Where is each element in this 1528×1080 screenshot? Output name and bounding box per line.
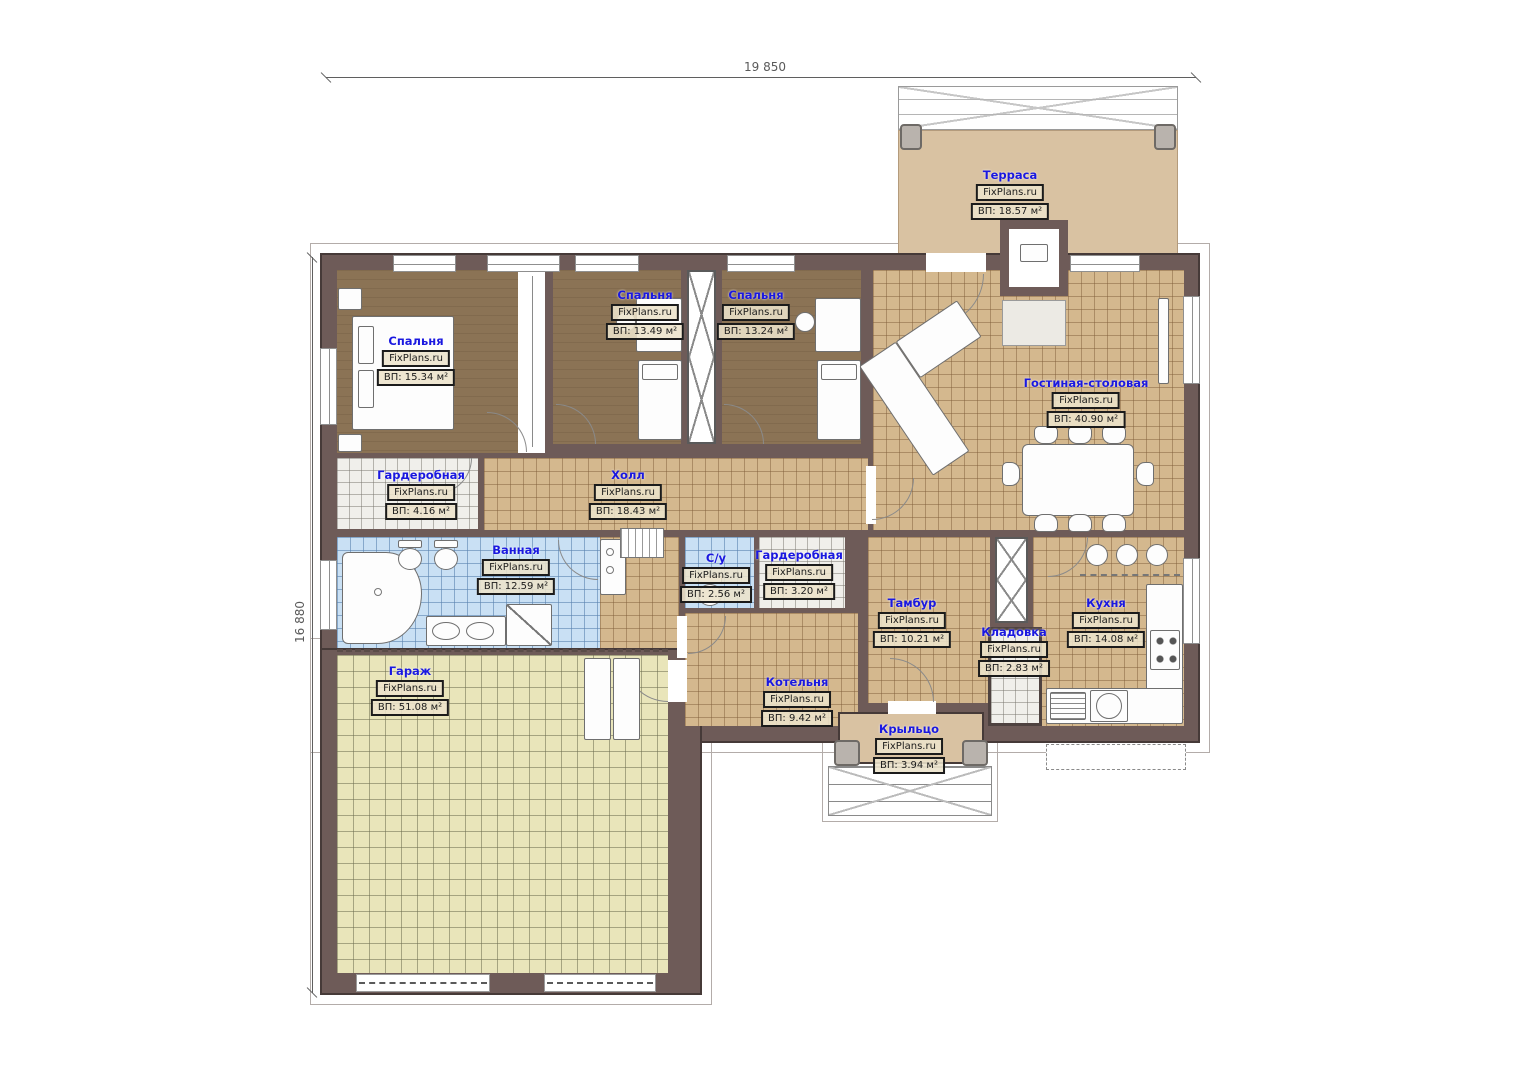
watermark: FixPlans.ru bbox=[1072, 612, 1140, 629]
garage-boundary-dashed bbox=[337, 649, 668, 652]
kitchen-sink bbox=[1096, 693, 1122, 719]
room-name: Гардеробная bbox=[755, 548, 843, 562]
terrace-post bbox=[1154, 124, 1176, 150]
room-label-porch: Крыльцо FixPlans.ru ВП: 3.94 м² bbox=[873, 722, 945, 774]
back-patio bbox=[1046, 744, 1186, 770]
garage-door-opening bbox=[668, 660, 687, 702]
watermark: FixPlans.ru bbox=[763, 691, 831, 708]
window bbox=[727, 255, 795, 272]
bidet-base bbox=[434, 540, 458, 548]
bathtub-drain bbox=[374, 588, 382, 596]
room-area: ВП: 3.20 м² bbox=[763, 583, 835, 600]
washbasin bbox=[466, 622, 494, 640]
attic-ladder-hatch bbox=[620, 528, 664, 558]
bar-stool bbox=[1086, 544, 1108, 566]
nightstand bbox=[338, 288, 362, 310]
room-name: Ванная bbox=[492, 543, 540, 557]
room-area: ВП: 3.94 м² bbox=[873, 757, 945, 774]
dining-chair bbox=[1034, 426, 1058, 444]
room-label-pantry: Кладовка FixPlans.ru ВП: 2.83 м² bbox=[978, 625, 1050, 677]
bar-stool bbox=[1146, 544, 1168, 566]
dishwasher bbox=[1050, 692, 1086, 720]
dining-chair bbox=[1102, 514, 1126, 532]
window bbox=[393, 255, 456, 272]
window bbox=[320, 348, 337, 425]
terrace-decking bbox=[898, 86, 1178, 130]
room-area: ВП: 10.21 м² bbox=[873, 631, 951, 648]
room-label-bedroom-2: Спальня FixPlans.ru ВП: 13.49 м² bbox=[606, 288, 684, 340]
garage-shelving bbox=[584, 658, 611, 740]
window bbox=[1183, 558, 1200, 644]
hearth-rug bbox=[1002, 300, 1066, 346]
bar-counter-dashed bbox=[1080, 574, 1180, 576]
watermark: FixPlans.ru bbox=[976, 184, 1044, 201]
cabinet-knob bbox=[606, 566, 614, 574]
pillow bbox=[358, 326, 374, 364]
boiler-door-opening bbox=[677, 616, 687, 658]
watermark: FixPlans.ru bbox=[878, 612, 946, 629]
watermark: FixPlans.ru bbox=[594, 484, 662, 501]
room-name: С/у bbox=[706, 551, 726, 565]
floor-plan-canvas: 19 850 16 880 bbox=[0, 0, 1528, 1080]
room-area: ВП: 18.57 м² bbox=[971, 203, 1049, 220]
porch-post bbox=[962, 740, 988, 766]
dimension-line-top bbox=[326, 77, 1196, 78]
window bbox=[320, 560, 337, 630]
watermark: FixPlans.ru bbox=[482, 559, 550, 576]
pillow bbox=[642, 364, 678, 380]
dining-chair bbox=[1068, 426, 1092, 444]
floor-hall bbox=[484, 458, 868, 530]
room-name: Терраса bbox=[983, 168, 1037, 182]
room-label-living-dining: Гостиная-столовая FixPlans.ru ВП: 40.90 … bbox=[1024, 376, 1149, 428]
room-area: ВП: 14.08 м² bbox=[1067, 631, 1145, 648]
shower bbox=[506, 604, 552, 646]
cabinet-knob bbox=[606, 548, 614, 556]
room-label-garage: Гараж FixPlans.ru ВП: 51.08 м² bbox=[371, 664, 449, 716]
room-label-wardrobe-1: Гардеробная FixPlans.ru ВП: 4.16 м² bbox=[377, 468, 465, 520]
room-name: Спальня bbox=[388, 334, 443, 348]
room-name: Холл bbox=[611, 468, 645, 482]
room-label-hall: Холл FixPlans.ru ВП: 18.43 м² bbox=[589, 468, 667, 520]
porch-post bbox=[834, 740, 860, 766]
room-area: ВП: 4.16 м² bbox=[385, 503, 457, 520]
room-name: Спальня bbox=[617, 288, 672, 302]
room-label-boiler-room: Котельня FixPlans.ru ВП: 9.42 м² bbox=[761, 675, 833, 727]
garage-door bbox=[544, 974, 656, 992]
room-area: ВП: 12.59 м² bbox=[477, 578, 555, 595]
room-area: ВП: 2.83 м² bbox=[978, 660, 1050, 677]
room-area: ВП: 13.24 м² bbox=[717, 323, 795, 340]
room-name: Гараж bbox=[389, 664, 432, 678]
room-name: Кухня bbox=[1086, 596, 1126, 610]
room-label-bedroom-1: Спальня FixPlans.ru ВП: 15.34 м² bbox=[377, 334, 455, 386]
room-name: Гостиная-столовая bbox=[1024, 376, 1149, 390]
dining-table bbox=[1022, 444, 1134, 516]
dining-chair bbox=[1102, 426, 1126, 444]
room-name: Гардеробная bbox=[377, 468, 465, 482]
window bbox=[575, 255, 639, 272]
washbasin bbox=[432, 622, 460, 640]
bar-stool bbox=[1116, 544, 1138, 566]
desk bbox=[815, 298, 861, 352]
chair bbox=[795, 312, 815, 332]
room-name: Котельня bbox=[766, 675, 829, 689]
room-name: Кладовка bbox=[981, 625, 1047, 639]
watermark: FixPlans.ru bbox=[980, 641, 1048, 658]
window bbox=[1070, 255, 1140, 272]
watermark: FixPlans.ru bbox=[387, 484, 455, 501]
dimension-line-left bbox=[312, 257, 313, 993]
room-area: ВП: 13.49 м² bbox=[606, 323, 684, 340]
window bbox=[1183, 296, 1200, 384]
dimension-height-label: 16 880 bbox=[293, 597, 307, 647]
dining-chair bbox=[1034, 514, 1058, 532]
dimension-width-label: 19 850 bbox=[740, 60, 790, 74]
watermark: FixPlans.ru bbox=[682, 567, 750, 584]
pillow bbox=[821, 364, 857, 380]
closet-sliding bbox=[518, 270, 545, 453]
bidet bbox=[434, 548, 458, 570]
dining-chair bbox=[1136, 462, 1154, 486]
room-area: ВП: 2.56 м² bbox=[680, 586, 752, 603]
terrace-door-opening bbox=[926, 253, 986, 272]
nightstand bbox=[338, 434, 362, 452]
room-label-bathroom: Ванная FixPlans.ru ВП: 12.59 м² bbox=[477, 543, 555, 595]
room-label-vestibule: Тамбур FixPlans.ru ВП: 10.21 м² bbox=[873, 596, 951, 648]
closet-shelving bbox=[995, 537, 1028, 623]
room-label-kitchen: Кухня FixPlans.ru ВП: 14.08 м² bbox=[1067, 596, 1145, 648]
watermark: FixPlans.ru bbox=[875, 738, 943, 755]
watermark: FixPlans.ru bbox=[722, 304, 790, 321]
toilet-tank bbox=[398, 540, 422, 548]
room-name: Спальня bbox=[728, 288, 783, 302]
garage-door-dash bbox=[359, 982, 487, 984]
watermark: FixPlans.ru bbox=[765, 564, 833, 581]
room-label-terrace: Терраса FixPlans.ru ВП: 18.57 м² bbox=[971, 168, 1049, 220]
closet-shelving bbox=[687, 270, 716, 444]
garage-door bbox=[356, 974, 490, 992]
terrace-post bbox=[900, 124, 922, 150]
room-name: Тамбур bbox=[888, 596, 937, 610]
room-area: ВП: 9.42 м² bbox=[761, 710, 833, 727]
toilet bbox=[398, 548, 422, 570]
garage-door-dash bbox=[547, 982, 653, 984]
entry-door-opening bbox=[888, 701, 936, 714]
room-area: ВП: 51.08 м² bbox=[371, 699, 449, 716]
room-area: ВП: 15.34 м² bbox=[377, 369, 455, 386]
room-label-bedroom-3: Спальня FixPlans.ru ВП: 13.24 м² bbox=[717, 288, 795, 340]
watermark: FixPlans.ru bbox=[611, 304, 679, 321]
radiator bbox=[1158, 298, 1169, 384]
room-label-wc: С/у FixPlans.ru ВП: 2.56 м² bbox=[680, 551, 752, 603]
fireplace-insert bbox=[1020, 244, 1048, 262]
watermark: FixPlans.ru bbox=[376, 680, 444, 697]
dining-chair bbox=[1068, 514, 1092, 532]
room-label-wardrobe-2: Гардеробная FixPlans.ru ВП: 3.20 м² bbox=[755, 548, 843, 600]
room-name: Крыльцо bbox=[879, 722, 939, 736]
stove bbox=[1150, 630, 1180, 670]
dining-chair bbox=[1002, 462, 1020, 486]
room-area: ВП: 40.90 м² bbox=[1047, 411, 1125, 428]
window bbox=[487, 255, 560, 272]
garage-shelving bbox=[613, 658, 640, 740]
watermark: FixPlans.ru bbox=[382, 350, 450, 367]
room-area: ВП: 18.43 м² bbox=[589, 503, 667, 520]
watermark: FixPlans.ru bbox=[1052, 392, 1120, 409]
pillow bbox=[358, 370, 374, 408]
